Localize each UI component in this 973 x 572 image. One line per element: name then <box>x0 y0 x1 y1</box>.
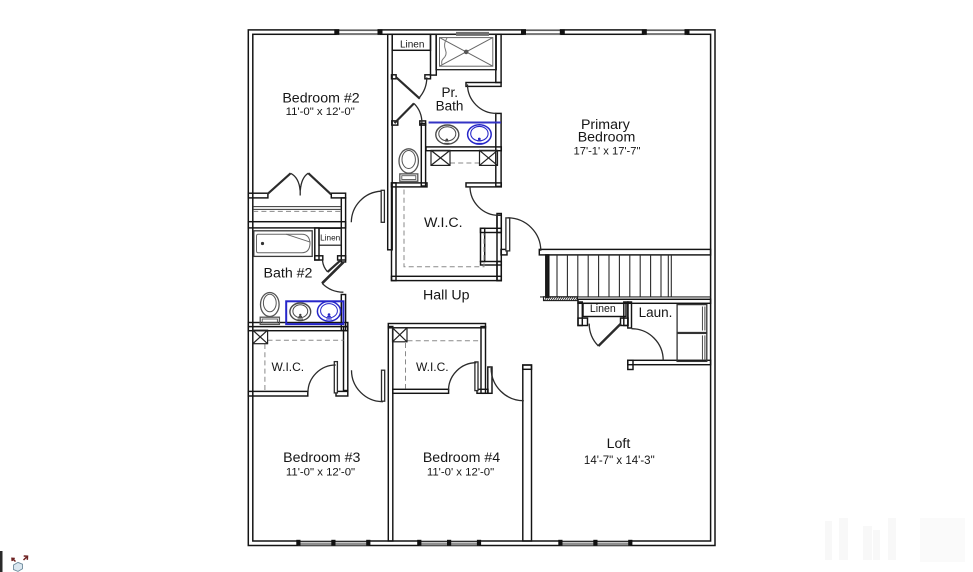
svg-text:Bath #2: Bath #2 <box>264 266 313 282</box>
svg-text:11'-0" x 12'-0": 11'-0" x 12'-0" <box>286 466 355 478</box>
svg-text:Bath: Bath <box>436 98 464 113</box>
svg-text:17'-1' x 17'-7": 17'-1' x 17'-7" <box>574 145 641 157</box>
svg-text:11'-0' x 12'-0": 11'-0' x 12'-0" <box>427 466 494 478</box>
svg-text:Bedroom #4: Bedroom #4 <box>423 450 500 466</box>
svg-text:Linen: Linen <box>400 39 424 50</box>
svg-text:Linen: Linen <box>320 233 340 242</box>
svg-text:14'-7" x 14'-3": 14'-7" x 14'-3" <box>584 455 655 467</box>
svg-text:W.I.C.: W.I.C. <box>416 360 449 374</box>
svg-text:W.I.C.: W.I.C. <box>271 360 304 374</box>
svg-text:Bedroom: Bedroom <box>578 130 636 146</box>
svg-text:Loft: Loft <box>607 436 631 452</box>
svg-text:11'-0" x 12'-0": 11'-0" x 12'-0" <box>286 106 355 118</box>
svg-text:Bedroom #3: Bedroom #3 <box>283 450 360 466</box>
svg-text:W.I.C.: W.I.C. <box>424 215 463 231</box>
svg-text:Laun.: Laun. <box>639 305 673 320</box>
svg-text:Linen: Linen <box>590 303 616 315</box>
svg-text:Bedroom #2: Bedroom #2 <box>282 90 359 106</box>
svg-text:Hall Up: Hall Up <box>423 287 470 303</box>
